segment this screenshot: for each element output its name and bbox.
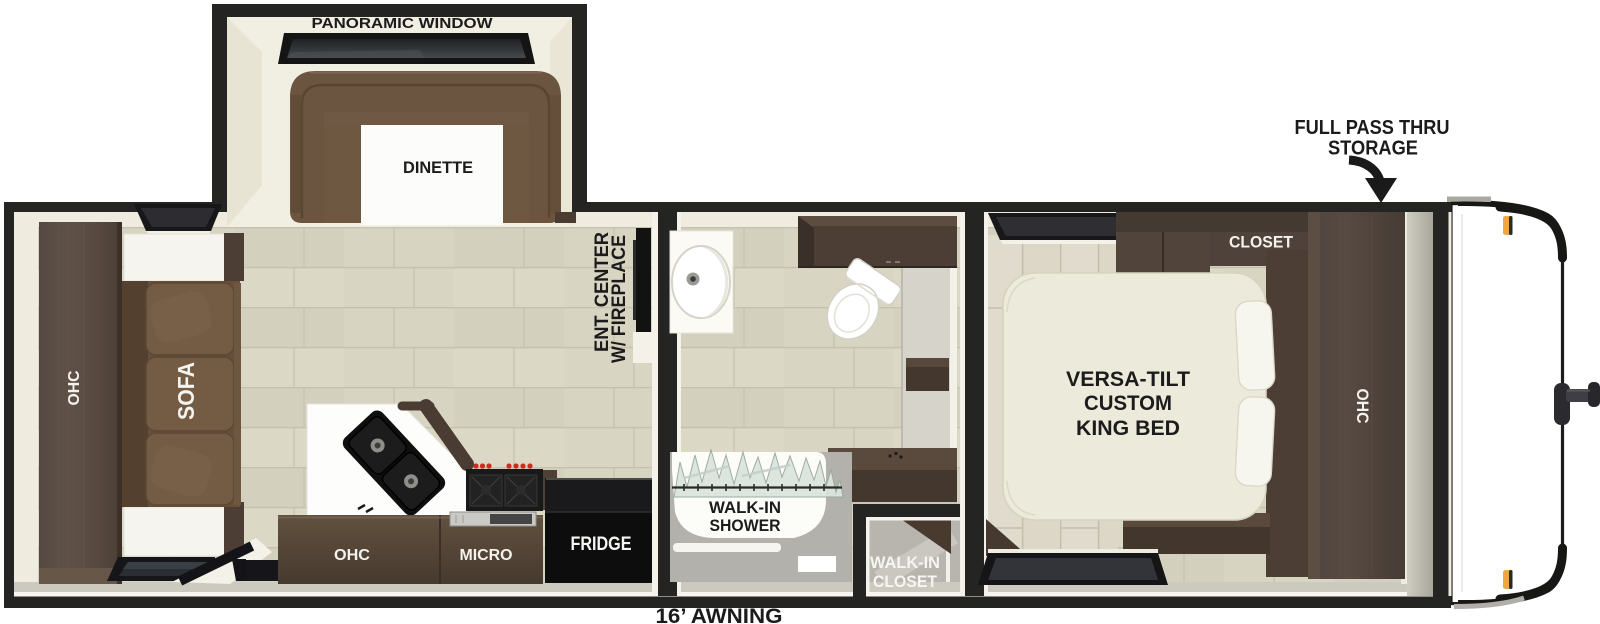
svg-text:W/ FIREPLACE: W/ FIREPLACE	[609, 235, 630, 363]
svg-text:CUSTOM: CUSTOM	[1084, 392, 1172, 415]
svg-text:OHC: OHC	[1353, 389, 1372, 424]
svg-text:WALK-IN: WALK-IN	[709, 499, 781, 517]
svg-text:OHC: OHC	[334, 547, 370, 564]
svg-text:PANORAMIC WINDOW: PANORAMIC WINDOW	[312, 16, 493, 32]
svg-text:FRIDGE: FRIDGE	[571, 533, 632, 555]
svg-text:VERSA-TILT: VERSA-TILT	[1066, 368, 1190, 391]
svg-text:OHC: OHC	[66, 370, 83, 405]
svg-text:SHOWER: SHOWER	[710, 517, 781, 535]
svg-text:CLOSET: CLOSET	[1229, 233, 1294, 252]
svg-text:SOFA: SOFA	[173, 362, 199, 420]
svg-text:WALK-IN: WALK-IN	[870, 554, 940, 572]
svg-text:KING BED: KING BED	[1076, 417, 1180, 440]
svg-text:DINETTE: DINETTE	[403, 159, 473, 177]
svg-text:MICRO: MICRO	[460, 547, 513, 564]
svg-text:FULL PASS THRU: FULL PASS THRU	[1295, 117, 1450, 139]
svg-text:16’ AWNING: 16’ AWNING	[656, 605, 783, 624]
svg-text:STORAGE: STORAGE	[1328, 138, 1418, 160]
svg-text:CLOSET: CLOSET	[873, 573, 937, 591]
